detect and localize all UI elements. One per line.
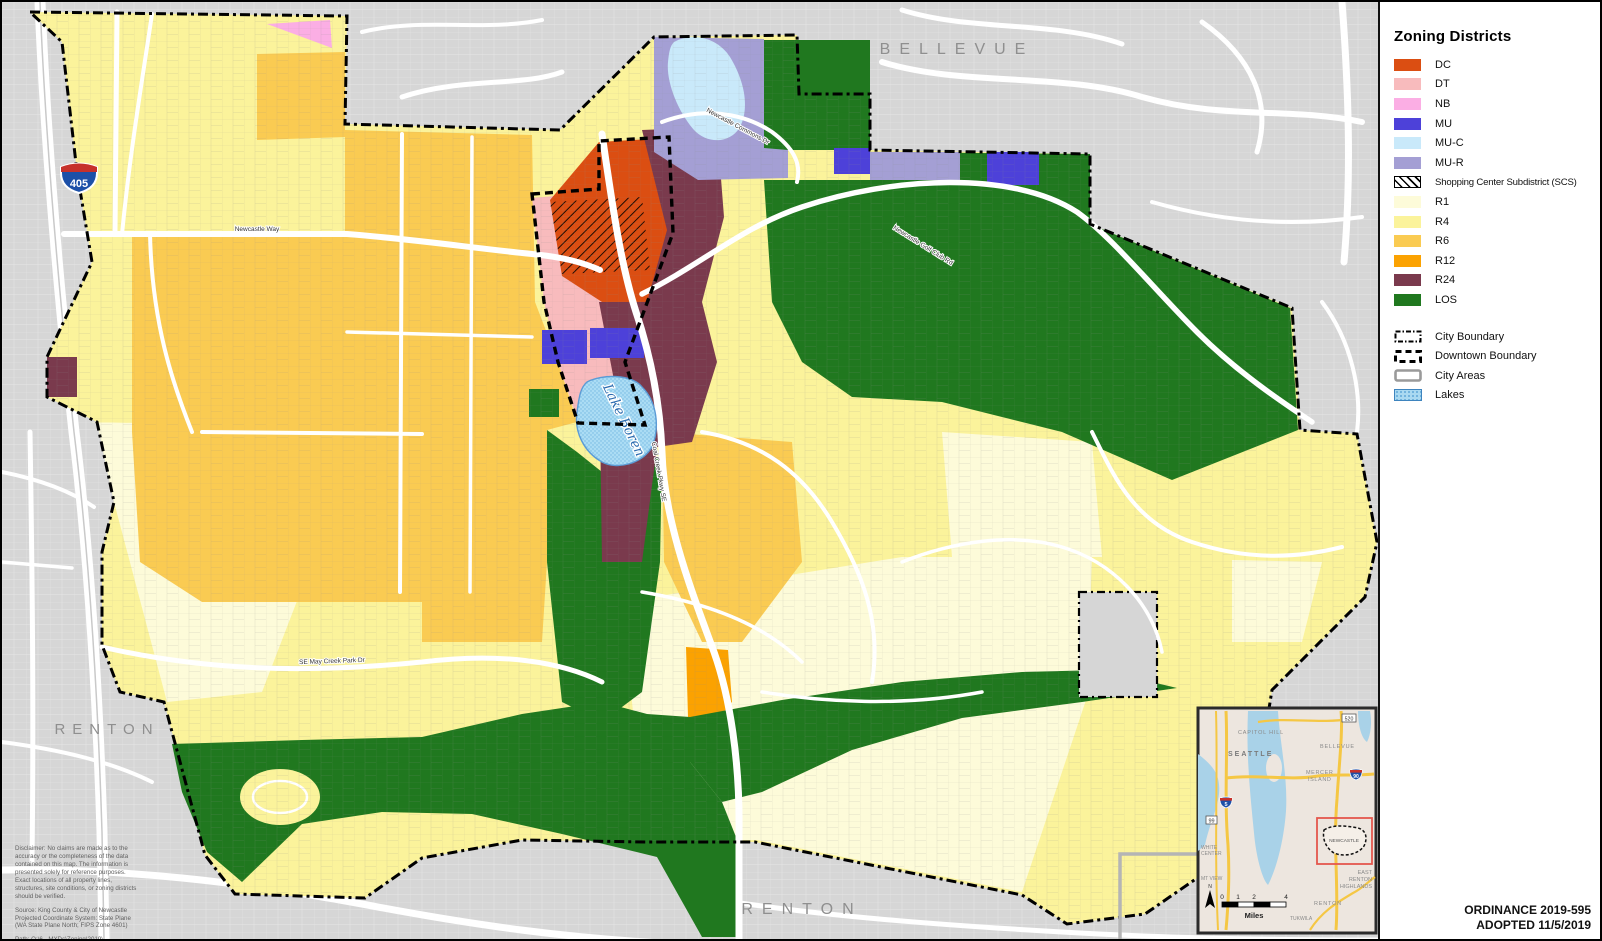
r4-swatch — [1394, 216, 1421, 228]
legend-row-downtown-boundary: Downtown Boundary — [1394, 346, 1592, 366]
inset-shield-sr99: 99 — [1206, 816, 1217, 824]
svg-text:MERCER: MERCER — [1306, 770, 1333, 776]
legend-row-city-areas: City Areas — [1394, 366, 1592, 386]
svg-text:RENTON: RENTON — [1349, 877, 1372, 883]
scs-hatch-swatch — [1394, 176, 1421, 188]
r12-swatch — [1394, 255, 1421, 267]
legend-row-muc: MU-C — [1394, 133, 1592, 153]
inset-shield-sr520: 520 — [1342, 714, 1356, 722]
svg-text:Miles: Miles — [1245, 911, 1264, 920]
svg-text:90: 90 — [1353, 774, 1359, 780]
svg-text:NEWCASTLE: NEWCASTLE — [1329, 838, 1359, 844]
legend-row-r6: R6 — [1394, 231, 1592, 251]
renton-south-label: RENTON — [741, 901, 862, 918]
svg-text:99: 99 — [1208, 818, 1214, 824]
svg-text:TUKWILA: TUKWILA — [1290, 916, 1313, 922]
mu-swatch — [1394, 118, 1421, 130]
legend-row-mu: MU — [1394, 114, 1592, 134]
legend-row-dt: DT — [1394, 75, 1592, 95]
r24-swatch — [1394, 274, 1421, 286]
legend-row-r24: R24 — [1394, 271, 1592, 291]
svg-text:5: 5 — [1224, 802, 1227, 808]
r6-swatch — [1394, 235, 1421, 247]
ordinance-note: ORDINANCE 2019-595 ADOPTED 11/5/2019 — [1464, 903, 1591, 933]
svg-text:ISLAND: ISLAND — [1308, 777, 1331, 783]
renton-west-label: RENTON — [54, 721, 159, 738]
svg-text:405: 405 — [70, 178, 88, 190]
map-area: Lake Boren BELLEVUE RENTON RENTON Coal C… — [2, 2, 1378, 939]
source-text: Source: King County & City of Newcastle … — [15, 907, 205, 931]
dc-swatch — [1394, 59, 1421, 71]
disclaimer-text: Disclaimer: No claims are made as to the… — [15, 845, 205, 901]
ordinance-line2: ADOPTED 11/5/2019 — [1464, 918, 1591, 933]
svg-text:RENTON: RENTON — [1314, 901, 1342, 907]
svg-text:4: 4 — [1284, 894, 1288, 901]
inset-map: 5 90 99 520 CAPITOL HILL SEATTLE BELLEVU… — [1198, 708, 1376, 933]
legend-row-r12: R12 — [1394, 251, 1592, 271]
legend-row-los: LOS — [1394, 290, 1592, 310]
svg-text:SEATTLE: SEATTLE — [1228, 751, 1273, 758]
legend-title: Zoning Districts — [1394, 28, 1592, 45]
r1-swatch — [1394, 196, 1421, 208]
legend-row-city-boundary: City Boundary — [1394, 327, 1592, 347]
path-date-text: Path: Q:\6 - MXDs\Zoning\2019\ Date: 11/… — [15, 936, 205, 941]
bellevue-label: BELLEVUE — [880, 41, 1035, 58]
city-boundary-icon — [1394, 330, 1422, 343]
svg-text:N: N — [1208, 884, 1212, 890]
svg-text:520: 520 — [1345, 716, 1354, 722]
los-swatch — [1394, 294, 1421, 306]
svg-text:EAST: EAST — [1358, 870, 1373, 876]
svg-text:CAPITOL HILL: CAPITOL HILL — [1238, 730, 1284, 736]
legend-row-nb: NB — [1394, 94, 1592, 114]
dt-swatch — [1394, 78, 1421, 90]
legend-row-r4: R4 — [1394, 212, 1592, 232]
mur-swatch — [1394, 157, 1421, 169]
legend-row-dc: DC — [1394, 55, 1592, 75]
zoning-map-sheet: Lake Boren BELLEVUE RENTON RENTON Coal C… — [0, 0, 1602, 941]
svg-text:0: 0 — [1220, 894, 1224, 901]
city-areas-icon — [1394, 369, 1422, 382]
svg-text:MT VIEW: MT VIEW — [1201, 876, 1223, 882]
nb-swatch — [1394, 98, 1421, 110]
legend-row-lakes: Lakes — [1394, 386, 1592, 406]
muc-swatch — [1394, 137, 1421, 149]
svg-text:2: 2 — [1252, 894, 1256, 901]
svg-text:HIGHLANDS: HIGHLANDS — [1340, 884, 1372, 890]
svg-text:BELLEVUE: BELLEVUE — [1320, 744, 1355, 750]
ordinance-line1: ORDINANCE 2019-595 — [1464, 903, 1591, 918]
svg-text:1: 1 — [1236, 894, 1240, 901]
legend-row-r1: R1 — [1394, 192, 1592, 212]
map-notes: Disclaimer: No claims are made as to the… — [15, 845, 205, 941]
legend-row-scs: Shopping Center Subdistrict (SCS) — [1394, 173, 1592, 193]
road-label-newcastle-way: Newcastle Way — [235, 226, 280, 233]
legend-panel: Zoning Districts DC DT NB MU MU-C MU-R S… — [1378, 2, 1600, 939]
lakes-swatch — [1394, 389, 1422, 401]
legend-row-mur: MU-R — [1394, 153, 1592, 173]
downtown-boundary-icon — [1394, 350, 1422, 363]
svg-text:CENTER: CENTER — [1201, 851, 1222, 857]
